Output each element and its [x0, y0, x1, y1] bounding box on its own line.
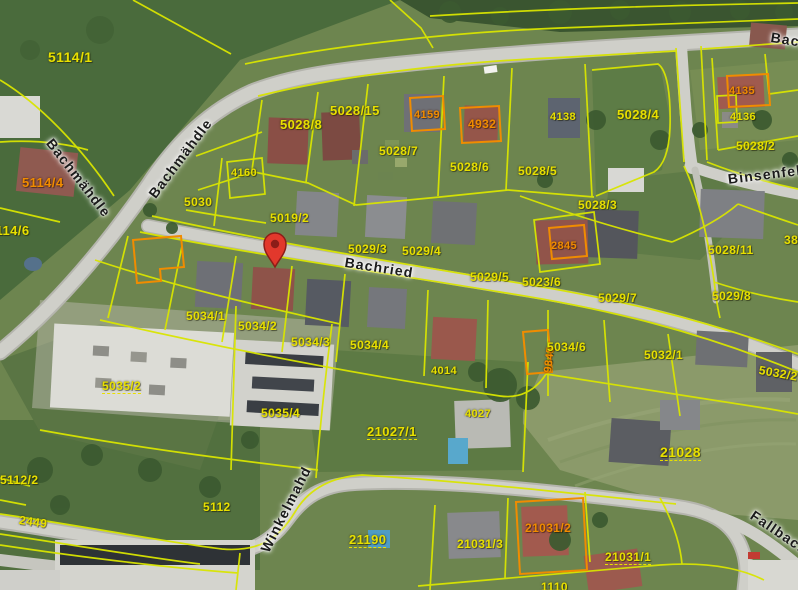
parcel-label: 5028/11	[708, 244, 754, 256]
parcel-label: 5029/8	[712, 290, 751, 302]
parcel-label: 21027/1	[367, 425, 417, 440]
parcel-label: 4027	[465, 409, 491, 420]
street-label: Fallbach	[748, 508, 798, 557]
street-label: Bachmähdle	[146, 116, 215, 200]
parcel-label: 4136	[730, 112, 756, 123]
parcel-label: 5019/2	[270, 212, 309, 224]
parcel-label: 5114/1	[48, 50, 92, 64]
parcel-label: 5029/7	[598, 292, 637, 304]
parcel-label: 4135	[729, 86, 755, 97]
parcel-label: 5034/3	[291, 336, 330, 348]
parcel-label: 21031/2	[525, 522, 571, 534]
parcel-label: 21031/1	[605, 551, 651, 565]
parcel-label: 5023/6	[522, 276, 561, 288]
parcel-label: 5028/5	[518, 165, 557, 177]
labels-layer: 5114/15114/45114/65028/85028/15415949324…	[0, 0, 798, 590]
parcel-label: 21028	[660, 445, 701, 461]
parcel-label: 5030	[184, 196, 212, 208]
parcel-label: 1110	[541, 581, 568, 590]
parcel-label: 5028/7	[379, 145, 418, 157]
parcel-label: 21190	[349, 533, 386, 548]
parcel-label: 5035/4	[261, 407, 300, 419]
parcel-label: 4159	[414, 110, 440, 121]
street-label: Bach	[770, 30, 798, 50]
street-label: Bachried	[344, 255, 415, 280]
street-label: Binsenfeld	[727, 162, 798, 186]
parcel-label: 4932	[468, 118, 496, 130]
parcel-label: 5028/4	[617, 108, 659, 121]
parcel-label: 5029/3	[348, 243, 387, 255]
parcel-label: 4014	[431, 366, 457, 377]
parcel-label: 5034/1	[186, 310, 225, 322]
parcel-label: 4160	[231, 168, 257, 179]
parcel-label: 5028/3	[578, 199, 617, 211]
parcel-label: 5032/2	[758, 364, 798, 383]
parcel-label: 5028/6	[450, 161, 489, 173]
parcel-label: 4138	[550, 112, 576, 123]
parcel-label: 2449	[18, 514, 48, 530]
parcel-label: 5032/1	[644, 349, 683, 361]
parcel-label: 5034/6	[547, 341, 586, 353]
parcel-label: 5028/15	[330, 104, 380, 117]
map-canvas[interactable]: 5114/15114/45114/65028/85028/15415949324…	[0, 0, 798, 590]
street-label: Winkelmahd	[258, 464, 313, 554]
parcel-label: 5028/2	[736, 140, 775, 152]
parcel-label: 2845	[551, 241, 577, 252]
parcel-label: 5034/4	[350, 339, 389, 351]
parcel-label: 385	[784, 234, 798, 246]
parcel-label: 5114/4	[22, 176, 63, 189]
parcel-label: 5034/2	[238, 320, 277, 332]
parcel-label: 5035/2	[102, 380, 141, 394]
parcel-label: 5112/2	[0, 474, 38, 486]
parcel-label: 5112	[203, 501, 231, 513]
parcel-label: 5029/4	[402, 245, 441, 257]
parcel-label: 21031/3	[457, 538, 503, 550]
parcel-label: 5114/6	[0, 224, 29, 237]
parcel-label: 5029/5	[470, 271, 509, 283]
parcel-label: 5028/8	[280, 118, 322, 131]
